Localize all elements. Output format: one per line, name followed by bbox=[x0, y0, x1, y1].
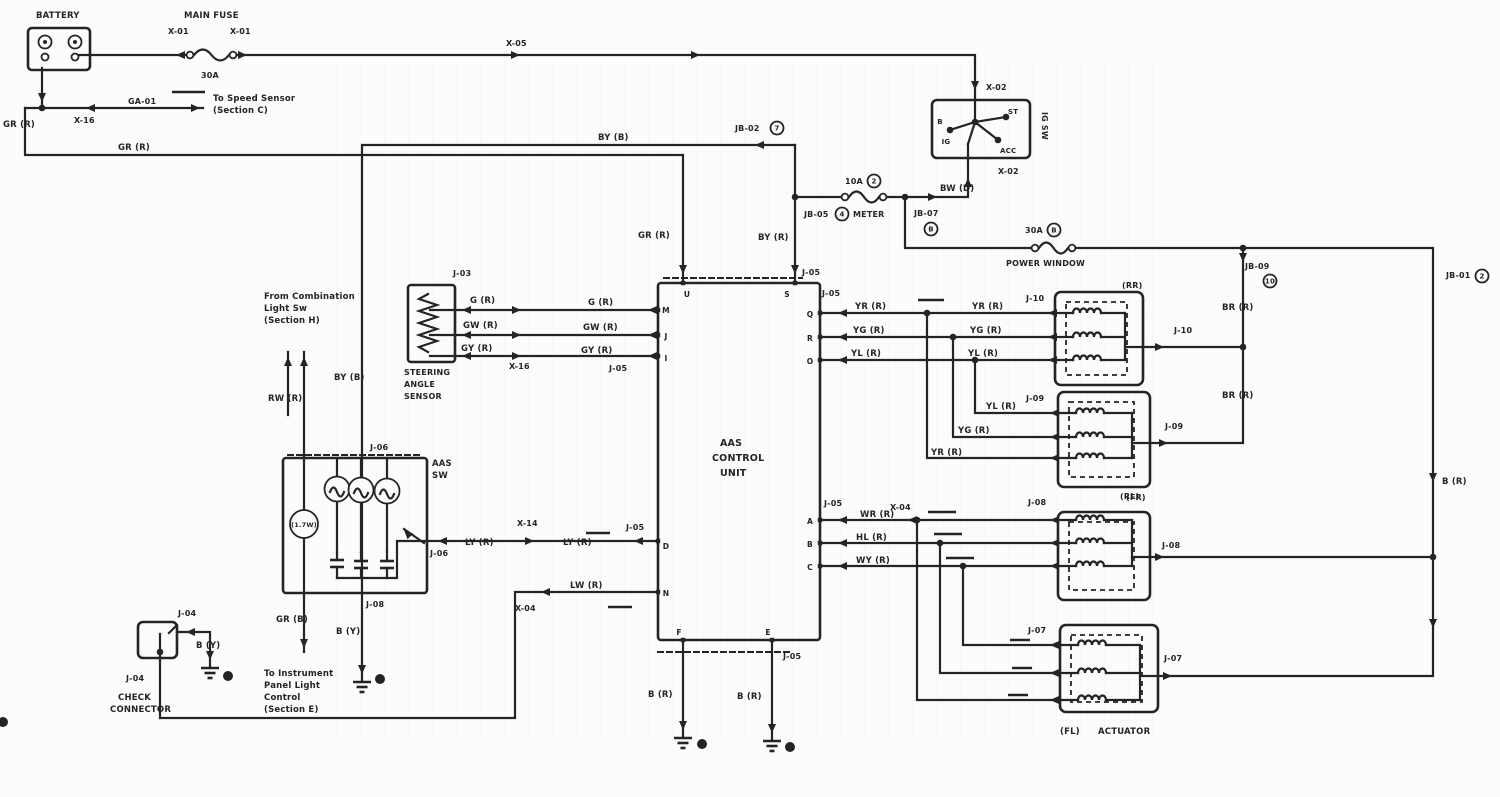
wire-label: J-03 bbox=[452, 269, 471, 278]
connector-arrow bbox=[1159, 439, 1168, 447]
wire-label: J-10 bbox=[1173, 326, 1192, 335]
junction-dot bbox=[947, 127, 954, 134]
wire-label: J-09 bbox=[1164, 422, 1183, 431]
wire-label: GW (R) bbox=[583, 323, 618, 333]
wire-label: POWER WINDOW bbox=[1006, 259, 1085, 268]
wire-label: J-04 bbox=[125, 674, 144, 683]
wire-label: MAIN FUSE bbox=[184, 11, 239, 21]
wire-label: A bbox=[807, 517, 813, 526]
wire-label: D bbox=[663, 542, 669, 551]
wire-label: SENSOR bbox=[404, 392, 442, 401]
connector-arrow bbox=[1163, 672, 1172, 680]
wire-label: B (Y) bbox=[196, 641, 220, 651]
wire-label: YG (R) bbox=[852, 326, 885, 336]
ground-dot bbox=[375, 674, 385, 684]
wire-label: GY (R) bbox=[581, 346, 612, 356]
junction-dot bbox=[914, 517, 921, 524]
connector-pin bbox=[681, 638, 685, 642]
wire-label: METER bbox=[853, 210, 885, 219]
wire-label: Control bbox=[264, 693, 301, 703]
wire-label: B bbox=[807, 540, 813, 549]
connector-pin bbox=[818, 518, 822, 522]
wire-label: JB-07 bbox=[913, 209, 939, 218]
wire-label: X-16 bbox=[74, 116, 95, 125]
connector-arrow bbox=[1429, 473, 1437, 482]
wire-label: WR (R) bbox=[860, 510, 894, 520]
junction-dot bbox=[1430, 554, 1437, 561]
wire-label: B (R) bbox=[1442, 477, 1467, 487]
wire-label: CHECK bbox=[118, 693, 151, 703]
junction-dot bbox=[972, 119, 979, 126]
wire-label: G (R) bbox=[588, 298, 613, 308]
fuse-terminal bbox=[880, 194, 887, 201]
wire-label: BY (B) bbox=[598, 133, 629, 143]
wire-label: SW bbox=[432, 471, 448, 481]
wire-label: B bbox=[937, 118, 943, 126]
wire-label: BW (D) bbox=[940, 184, 974, 194]
ground-dot bbox=[223, 671, 233, 681]
connector-pin bbox=[656, 354, 660, 358]
fuse-terminal bbox=[230, 52, 237, 59]
wire-label: X-14 bbox=[517, 519, 538, 528]
junction-dot bbox=[39, 105, 46, 112]
wire-label: J-05 bbox=[608, 364, 627, 373]
component-circle bbox=[325, 477, 350, 502]
wire-label: S bbox=[784, 290, 790, 299]
wire-label: J-07 bbox=[1163, 654, 1182, 663]
wire-label: (Section H) bbox=[264, 316, 320, 326]
wire-label: GA-01 bbox=[128, 97, 156, 106]
connector-arrow bbox=[284, 357, 292, 366]
wire-label: X-02 bbox=[998, 167, 1019, 176]
connector-pin bbox=[770, 638, 774, 642]
component-circle bbox=[375, 479, 400, 504]
circled-ref-label: 10 bbox=[1265, 278, 1275, 286]
wire-label: ST bbox=[1008, 108, 1018, 116]
circled-ref-label: 2 bbox=[871, 178, 876, 186]
wire-label: B (R) bbox=[648, 690, 673, 700]
wire-label: (RR) bbox=[1122, 281, 1142, 290]
connector-pin bbox=[818, 564, 822, 568]
wire-label: O bbox=[807, 357, 814, 366]
circled-ref-label: 2 bbox=[1479, 273, 1484, 281]
circled-ref-label: 4 bbox=[839, 211, 844, 219]
wire-label: I bbox=[665, 354, 668, 363]
connector-arrow bbox=[238, 51, 247, 59]
circled-ref-label: 7 bbox=[774, 125, 779, 133]
junction-dot bbox=[960, 563, 967, 570]
wire-label: Q bbox=[807, 310, 814, 319]
wire-label: GR (R) bbox=[638, 231, 670, 241]
connector-arrow bbox=[300, 357, 308, 366]
wire-label: BY (B) bbox=[334, 373, 365, 383]
wire-label: AAS bbox=[720, 438, 742, 449]
wire-label: J-08 bbox=[1027, 498, 1046, 507]
wire-label: (Section C) bbox=[213, 106, 268, 116]
junction-dot bbox=[157, 649, 164, 656]
connector-arrow bbox=[206, 651, 214, 660]
wire-label: R bbox=[807, 334, 813, 343]
junction-dot bbox=[1240, 245, 1247, 252]
connector-pin bbox=[818, 358, 822, 362]
wire-label: X-04 bbox=[515, 604, 536, 613]
wire-label: G (R) bbox=[470, 296, 495, 306]
wire-label: JB-09 bbox=[1244, 262, 1270, 271]
wire-label: X-05 bbox=[506, 39, 527, 48]
wire-label: (Section E) bbox=[264, 705, 319, 715]
wire-label: WY (R) bbox=[856, 556, 890, 566]
aas-wiring-diagram: 24B7B102BATTERYMAIN FUSEX-01X-0130ATo Sp… bbox=[0, 0, 1500, 797]
connector-pin bbox=[656, 539, 660, 543]
connector-pin bbox=[818, 311, 822, 315]
wire-label: J-04 bbox=[177, 609, 196, 618]
wire-label: IG SW bbox=[1040, 112, 1049, 140]
wire-label: STEERING bbox=[404, 368, 450, 377]
wire-label: RW (R) bbox=[268, 394, 302, 404]
wire-label: ANGLE bbox=[404, 380, 435, 389]
wire-label: UNIT bbox=[720, 468, 747, 479]
wire-label: CONTROL bbox=[712, 453, 764, 464]
wire-label: AAS bbox=[432, 459, 452, 469]
wire-label: U bbox=[684, 290, 690, 299]
connector-pin bbox=[793, 281, 797, 285]
wire-label: From Combination bbox=[264, 292, 355, 302]
junction-dot bbox=[937, 540, 944, 547]
junction-dot bbox=[1240, 344, 1247, 351]
battery-box bbox=[28, 28, 90, 70]
terminal-dot bbox=[73, 40, 77, 44]
wire-label: J-06 bbox=[369, 443, 388, 452]
wire-label: J-07 bbox=[1027, 626, 1046, 635]
wire-label: ACC bbox=[1000, 147, 1016, 155]
wire-label: J-08 bbox=[1161, 541, 1180, 550]
wire-label: YG (R) bbox=[957, 426, 990, 436]
wire-label: J-09 bbox=[1025, 394, 1044, 403]
wire-label: LY (R) bbox=[563, 538, 592, 548]
wire-label: Light Sw bbox=[264, 304, 307, 314]
wire-label: GW (R) bbox=[463, 321, 498, 331]
junction-dot bbox=[924, 310, 931, 317]
wire-label: ACTUATOR bbox=[1098, 727, 1151, 737]
wire-label: 30A bbox=[201, 71, 220, 80]
wire-label: J-06 bbox=[429, 549, 448, 558]
ground-dot bbox=[697, 739, 707, 749]
wire-label: GR (R) bbox=[3, 120, 35, 130]
wire-label: B (R) bbox=[737, 692, 762, 702]
junction-dot bbox=[950, 334, 957, 341]
connector-arrow bbox=[1429, 619, 1437, 628]
connector-pin bbox=[656, 590, 660, 594]
terminal-dot bbox=[43, 40, 47, 44]
circled-ref-label: B bbox=[1051, 227, 1057, 235]
wire-label: (FR) bbox=[1126, 493, 1146, 502]
component-circle bbox=[72, 54, 79, 61]
connector-pin bbox=[656, 308, 660, 312]
wire-label: B (Y) bbox=[336, 627, 360, 637]
wire-label: C bbox=[807, 563, 813, 572]
wire bbox=[1150, 248, 1243, 443]
wire-label: YR (R) bbox=[971, 302, 1003, 312]
wire-label: M bbox=[662, 306, 670, 315]
wire-label: YL (R) bbox=[967, 349, 998, 359]
wire-label: BR (R) bbox=[1222, 391, 1254, 401]
fuse-terminal bbox=[187, 52, 194, 59]
wire-label: JB-02 bbox=[734, 124, 760, 133]
wire-label: CONNECTOR bbox=[110, 705, 171, 715]
wire-label: J-05 bbox=[823, 499, 842, 508]
wire-label: GR (B) bbox=[276, 615, 308, 625]
connector-arrow bbox=[186, 628, 195, 636]
wire-label: 30A bbox=[1025, 226, 1044, 235]
connector-arrow bbox=[176, 51, 185, 59]
ground-dot bbox=[785, 742, 795, 752]
wire-label: J-10 bbox=[1025, 294, 1044, 303]
wire-label: HL (R) bbox=[856, 533, 887, 543]
connector-pin bbox=[656, 333, 660, 337]
connector-arrow bbox=[511, 51, 520, 59]
fuse-terminal bbox=[842, 194, 849, 201]
wire-label: N bbox=[663, 589, 669, 598]
wire-label: IG bbox=[942, 138, 951, 146]
ground-dot bbox=[0, 717, 8, 727]
wire-label: J-05 bbox=[801, 268, 820, 277]
wire-label: J-05 bbox=[821, 289, 840, 298]
wire-label: LY (R) bbox=[465, 538, 494, 548]
fuse-element bbox=[194, 50, 229, 61]
wire-label: BATTERY bbox=[36, 11, 80, 21]
wire-label: YL (R) bbox=[985, 402, 1016, 412]
component-circle bbox=[349, 478, 374, 503]
junction-dot bbox=[995, 137, 1002, 144]
wire-label: Panel Light bbox=[264, 681, 320, 691]
wire-label: 10A bbox=[845, 177, 864, 186]
wire-label: J-08 bbox=[365, 600, 384, 609]
connector-arrow bbox=[1239, 253, 1247, 262]
wire-label: J-05 bbox=[625, 523, 644, 532]
wire-label: To Instrument bbox=[264, 669, 333, 679]
connector-pin bbox=[818, 541, 822, 545]
wire-label: J-05 bbox=[782, 652, 801, 661]
wire-label: LW (R) bbox=[570, 581, 603, 591]
wire-label: YL (R) bbox=[850, 349, 881, 359]
wire-label: YR (R) bbox=[930, 448, 962, 458]
connector-arrow bbox=[691, 51, 700, 59]
connector-arrow bbox=[38, 93, 46, 102]
connector-arrow bbox=[191, 104, 200, 112]
wire-label: X-01 bbox=[168, 27, 189, 36]
wire-label: JB-01 bbox=[1445, 271, 1471, 280]
fuse-terminal bbox=[1069, 245, 1076, 252]
wire-label: To Speed Sensor bbox=[213, 94, 296, 104]
circled-ref-label: B bbox=[928, 226, 934, 234]
wire-label: J bbox=[664, 332, 668, 341]
wire-label: BY (R) bbox=[758, 233, 789, 243]
wire-label: (1.7W) bbox=[291, 521, 317, 529]
wire-label: YR (R) bbox=[854, 302, 886, 312]
connector-arrow bbox=[300, 639, 308, 648]
wire-label: (FL) bbox=[1060, 727, 1080, 737]
junction-dot bbox=[792, 194, 799, 201]
component-circle bbox=[42, 54, 49, 61]
wire-label: X-16 bbox=[509, 362, 530, 371]
wire-label: X-02 bbox=[986, 83, 1007, 92]
wire-label: JB-05 bbox=[803, 210, 829, 219]
junction-dot bbox=[902, 194, 909, 201]
connector-pin bbox=[818, 335, 822, 339]
wire-label: YG (R) bbox=[969, 326, 1002, 336]
wire-label: X-01 bbox=[230, 27, 251, 36]
fuse-terminal bbox=[1032, 245, 1039, 252]
wire-label: GR (R) bbox=[118, 143, 150, 153]
connector-pin bbox=[681, 281, 685, 285]
wire-label: F bbox=[676, 628, 681, 637]
wire-label: GY (R) bbox=[461, 344, 492, 354]
wire-label: BR (R) bbox=[1222, 303, 1254, 313]
connector-arrow bbox=[86, 104, 95, 112]
wire-label: E bbox=[765, 628, 770, 637]
wiring-diagram-page: 24B7B102BATTERYMAIN FUSEX-01X-0130ATo Sp… bbox=[0, 0, 1500, 797]
